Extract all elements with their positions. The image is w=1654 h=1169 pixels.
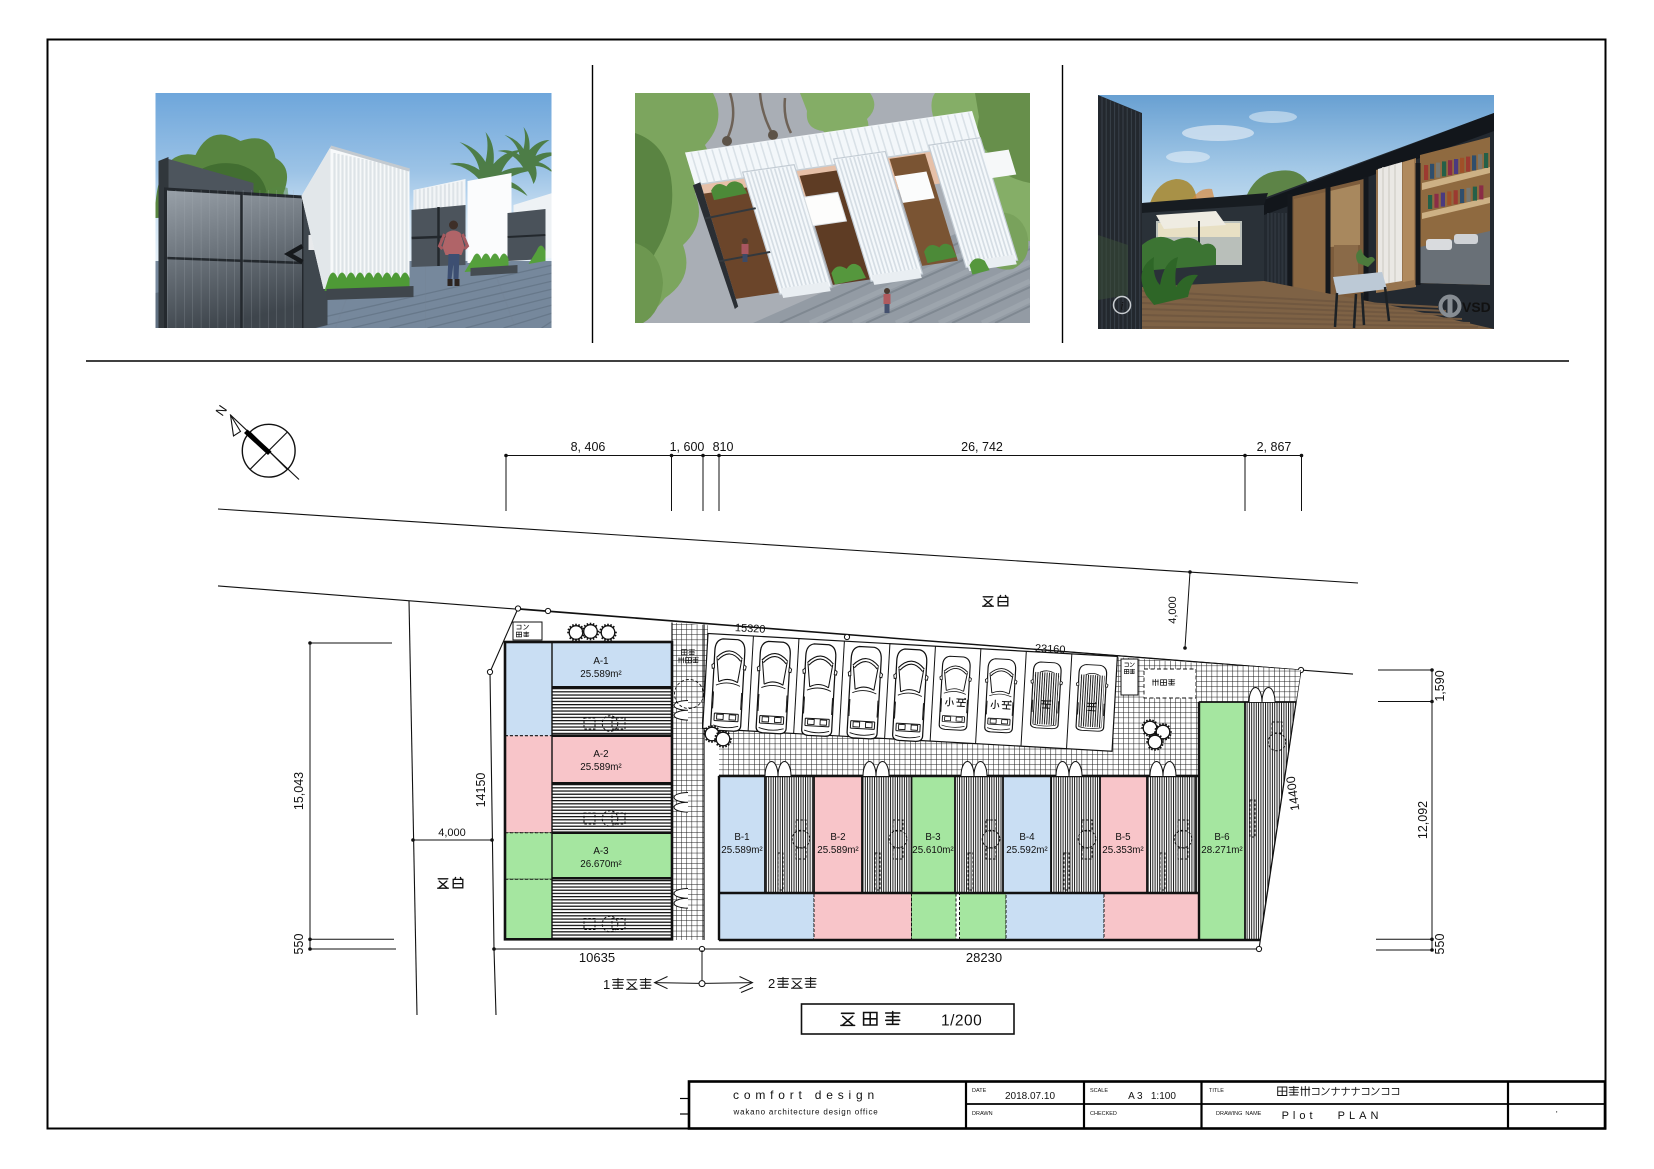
svg-text:B-5: B-5	[1115, 832, 1131, 843]
svg-text:Plot PLAN: Plot PLAN	[1282, 1110, 1383, 1122]
svg-text:1,590: 1,590	[1433, 670, 1447, 701]
svg-text:4,000: 4,000	[1167, 596, 1179, 624]
svg-text:28.271m²: 28.271m²	[1201, 845, 1243, 856]
svg-text:12,092: 12,092	[1416, 801, 1430, 839]
svg-text:A 3 1:100: A 3 1:100	[1128, 1091, 1176, 1102]
svg-text:B-2: B-2	[830, 832, 845, 843]
svg-text:wakano architecture design off: wakano architecture design office	[733, 1108, 879, 1117]
svg-text:10635: 10635	[579, 950, 615, 965]
svg-text:14150: 14150	[474, 773, 488, 808]
svg-text:26.670m²: 26.670m²	[580, 859, 622, 870]
svg-text:DRAWING NAME: DRAWING NAME	[1216, 1111, 1262, 1117]
svg-text:550: 550	[292, 934, 306, 955]
svg-text:1/200: 1/200	[941, 1013, 982, 1030]
svg-text:TITLE: TITLE	[1209, 1088, 1224, 1094]
svg-text:B-6: B-6	[1214, 832, 1230, 843]
svg-text:B-1: B-1	[734, 832, 749, 843]
svg-text:A-2: A-2	[593, 749, 608, 760]
svg-text:SCALE: SCALE	[1090, 1088, 1108, 1094]
svg-text:B-3: B-3	[925, 832, 941, 843]
svg-text:A-1: A-1	[593, 656, 608, 667]
svg-text:28230: 28230	[966, 950, 1002, 965]
svg-text:810: 810	[713, 440, 734, 454]
svg-text:CHECKED: CHECKED	[1090, 1111, 1117, 1117]
svg-text:25.589m²: 25.589m²	[721, 845, 763, 856]
svg-text:VSD: VSD	[1462, 299, 1491, 315]
svg-text:25.353m²: 25.353m²	[1102, 845, 1144, 856]
svg-text:26, 742: 26, 742	[961, 440, 1003, 454]
svg-text:25.589m²: 25.589m²	[580, 669, 622, 680]
svg-text:25.589m²: 25.589m²	[817, 845, 859, 856]
svg-text:2, 867: 2, 867	[1257, 440, 1292, 454]
svg-text:550: 550	[1433, 934, 1447, 955]
svg-text:23160: 23160	[1035, 643, 1066, 657]
svg-text:1: 1	[603, 977, 610, 992]
svg-text:2: 2	[768, 976, 775, 991]
svg-text:25.610m²: 25.610m²	[912, 845, 954, 856]
svg-text:DRAWN: DRAWN	[972, 1111, 993, 1117]
svg-text:DATE: DATE	[972, 1088, 987, 1094]
svg-text:15,043: 15,043	[292, 772, 306, 810]
svg-text:A-3: A-3	[593, 846, 609, 857]
svg-text:comfort design: comfort design	[733, 1088, 879, 1102]
svg-text:15320: 15320	[735, 622, 766, 636]
svg-text:25.589m²: 25.589m²	[580, 762, 622, 773]
svg-text:2018.07.10: 2018.07.10	[1005, 1091, 1055, 1102]
svg-text:1, 600: 1, 600	[670, 440, 705, 454]
svg-text:B-4: B-4	[1019, 832, 1035, 843]
svg-text:8, 406: 8, 406	[571, 440, 606, 454]
svg-text:i: i	[1120, 299, 1123, 313]
svg-text:25.592m²: 25.592m²	[1006, 845, 1048, 856]
svg-text:4,000: 4,000	[438, 827, 466, 839]
